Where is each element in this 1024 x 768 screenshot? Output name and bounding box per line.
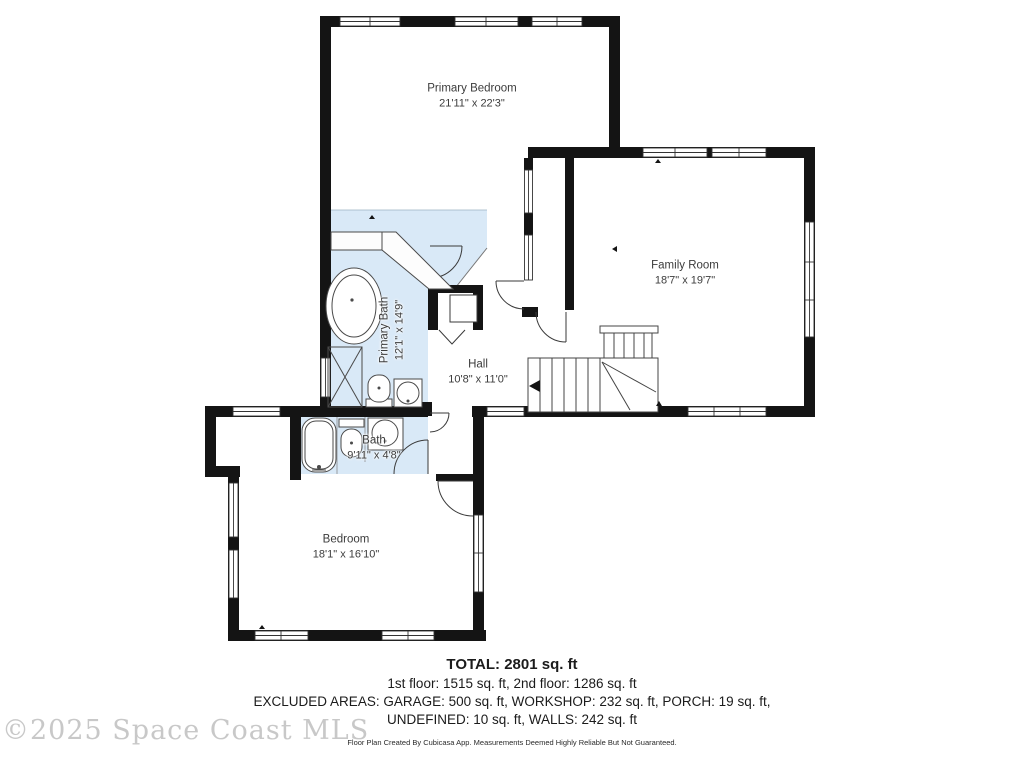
total-area: TOTAL: 2801 sq. ft [0, 656, 1024, 673]
room-dimensions: 21'11" x 22'3" [427, 96, 516, 111]
staircase [528, 326, 658, 412]
label-family-room: Family Room 18'7" x 19'7" [651, 257, 719, 288]
room-dimensions: 12'1" x 14'9" [392, 297, 407, 363]
room-dimensions: 18'1" x 16'10" [313, 547, 379, 562]
floor-areas: 1st floor: 1515 sq. ft, 2nd floor: 1286 … [0, 676, 1024, 691]
room-dimensions: 9'11" x 4'8" [347, 448, 400, 463]
room-name: Bedroom [313, 531, 379, 547]
sink [394, 379, 422, 407]
closet-bifold-door [439, 330, 465, 344]
room-name: Family Room [651, 257, 719, 273]
mls-watermark: ©2025 Space Coast MLS [2, 715, 369, 746]
label-primary-bedroom: Primary Bedroom 21'11" x 22'3" [427, 80, 516, 111]
floor-plan-drawing [0, 0, 1024, 768]
excluded-areas: EXCLUDED AREAS: GARAGE: 500 sq. ft, WORK… [0, 694, 1024, 709]
label-primary-bath: Primary Bath 12'1" x 14'9" [376, 297, 407, 363]
room-name: Bath [347, 432, 400, 448]
bathtub [302, 418, 336, 472]
room-name: Primary Bath [376, 297, 392, 363]
oval-bathtub [326, 268, 382, 344]
label-hall: Hall 10'8" x 11'0" [448, 356, 508, 387]
floor-plan: Primary Bedroom 21'11" x 22'3" Family Ro… [0, 0, 1024, 768]
room-name: Primary Bedroom [427, 80, 516, 96]
room-dimensions: 18'7" x 19'7" [651, 273, 719, 288]
room-name: Hall [448, 356, 508, 372]
label-bedroom: Bedroom 18'1" x 16'10" [313, 531, 379, 562]
closet-shelf [450, 295, 477, 322]
toilet [366, 375, 392, 407]
room-dimensions: 10'8" x 11'0" [448, 372, 508, 387]
label-bath: Bath 9'11" x 4'8" [347, 432, 400, 463]
